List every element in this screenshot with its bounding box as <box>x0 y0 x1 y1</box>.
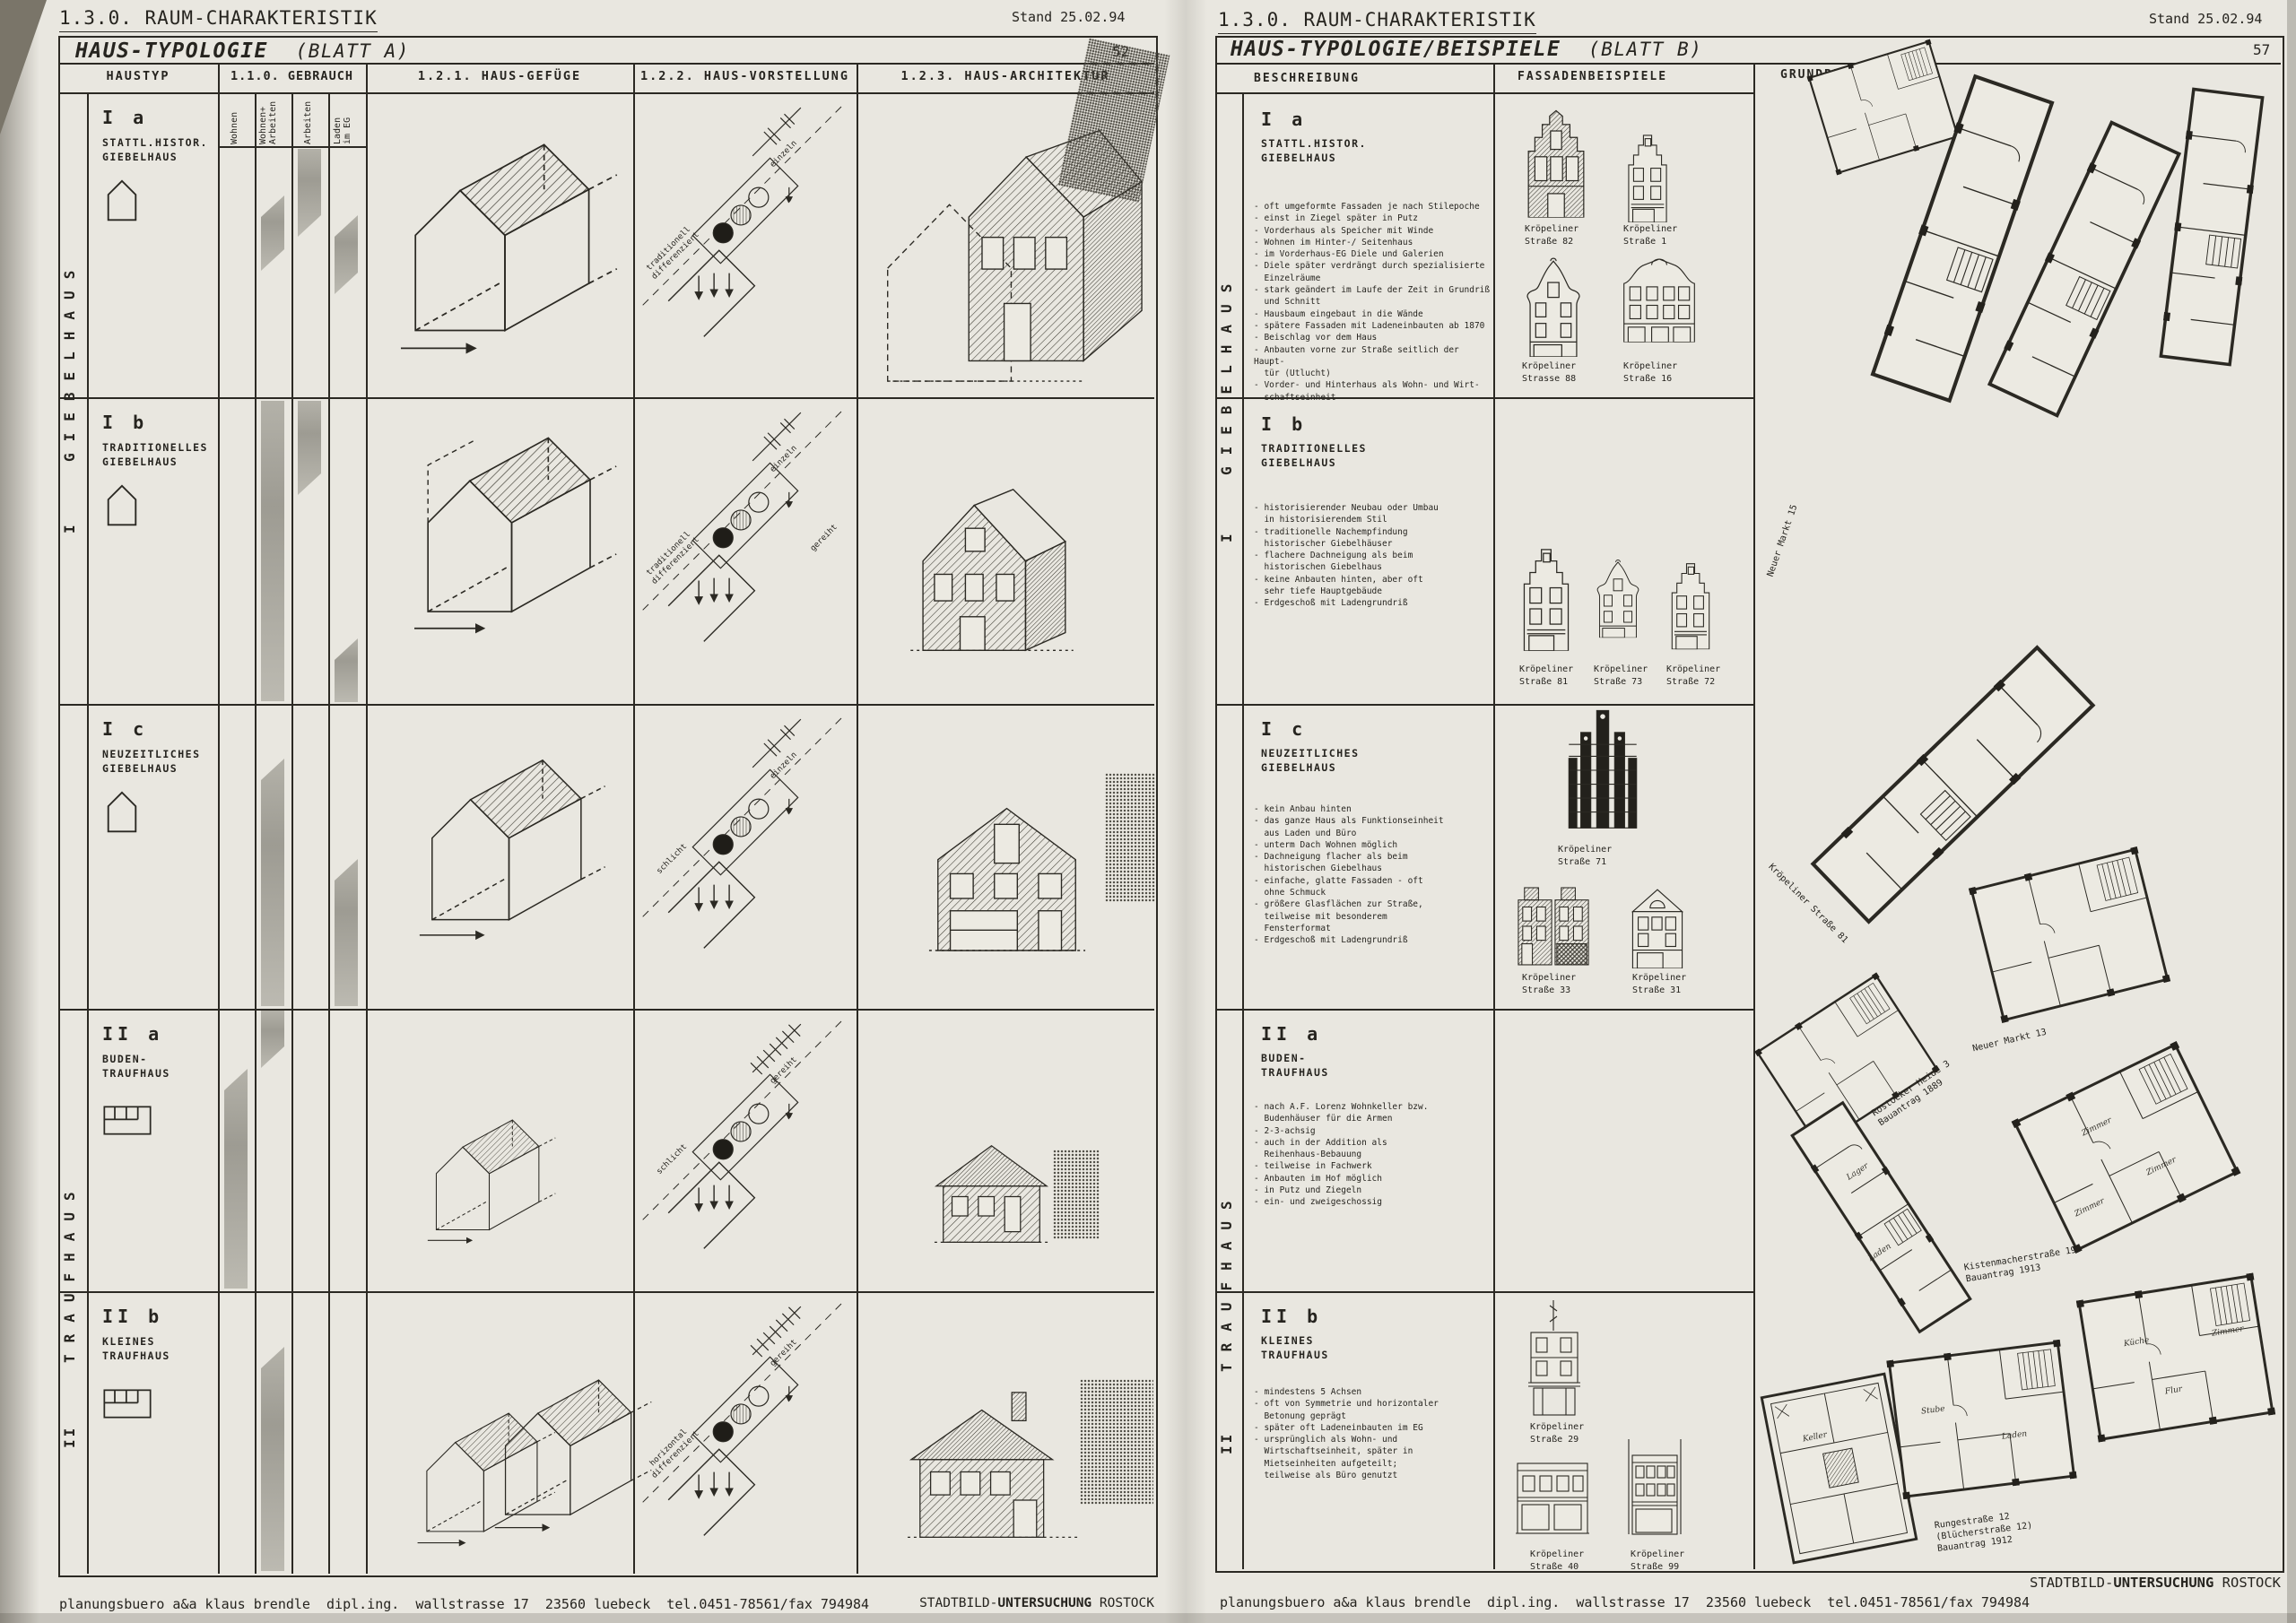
section-bullets-ib: - historisierender Neubau oder Umbau in … <box>1254 502 1492 610</box>
facade-caption: Kröpeliner Straße 16 <box>1623 360 1677 385</box>
footer-right: planungsbuero a&a klaus brendle dipl.ing… <box>1220 1594 2030 1610</box>
subcol-wohnen: Wohnen <box>230 96 239 144</box>
section-name-ib: TRADITIONELLES GIEBELHAUS <box>1261 441 1367 470</box>
facade-drawing-kroepeliner-73 <box>1594 538 1642 658</box>
section-bullets-ia: - oft umgeformte Fassaden je nach Stilep… <box>1254 201 1492 404</box>
facade-drawing-kroepeliner-33 <box>1516 882 1591 968</box>
section-bullets-iib: - mindestens 5 Achsen - oft von Symmetri… <box>1254 1386 1492 1481</box>
grid-line <box>1215 92 1753 94</box>
doc-header-right: 1.3.0. RAUM-CHARAKTERISTIK <box>1218 9 1536 34</box>
facade-drawing-kroepeliner-71 <box>1561 707 1645 834</box>
facade-caption: Kröpeliner Straße 29 <box>1530 1421 1584 1445</box>
section-name-iia: BUDEN- TRAUFHAUS <box>1261 1051 1329 1080</box>
section-code-ib: I b <box>1261 413 1307 435</box>
sheet-title-text: HAUS-TYPOLOGIE/BEISPIELE <box>1231 38 1561 61</box>
col-header-vorstellung: 1.2.2. HAUS-VORSTELLUNG <box>633 69 857 83</box>
sheet-subtitle-text: (BLATT B) <box>1588 39 1702 60</box>
doc-header-left: 1.3.0. RAUM-CHARAKTERISTIK <box>59 7 378 32</box>
group-label-giebelhaus-left: GIEBELHAUS <box>61 103 78 462</box>
group-number-i-left: I <box>61 498 78 534</box>
grid-line <box>291 92 293 1574</box>
facade-caption: Kröpeliner Straße 73 <box>1594 664 1648 688</box>
brand-pre: STADTBILD- <box>919 1596 997 1610</box>
section-code-iib: II b <box>1261 1306 1322 1327</box>
grid-line <box>633 63 635 1574</box>
scan-edge-right <box>2287 0 2296 1623</box>
scanned-spread: 1.3.0. RAUM-CHARAKTERISTIK Stand 25.02.9… <box>0 0 2296 1623</box>
stipple-block <box>1080 1379 1153 1505</box>
brand-post: ROSTOCK <box>2213 1575 2281 1591</box>
usage-bar <box>261 401 284 701</box>
pictogram-traufhaus-iib <box>102 1381 152 1420</box>
facade-drawing-kroepeliner-72 <box>1666 545 1715 658</box>
grid-line <box>1215 1009 1753 1011</box>
grid-line <box>1215 1291 1753 1293</box>
floorplan-rungestrasse-12 <box>1884 1324 2079 1515</box>
footer-left: planungsbuero a&a klaus brendle dipl.ing… <box>59 1596 869 1612</box>
page-gutter <box>1164 0 1207 1623</box>
subcol-laden-im-eg: Laden im EG <box>333 98 352 144</box>
scan-edge-bottom <box>0 1613 2296 1623</box>
col-header-beschreibung: BESCHREIBUNG <box>1254 72 1360 85</box>
row-name-ia: STATTL.HISTOR. GIEBELHAUS <box>102 135 208 164</box>
row-name-iib: KLEINES TRAUFHAUS <box>102 1334 170 1363</box>
grid-line <box>1215 704 1753 706</box>
page-number-right: 57 <box>2253 41 2270 58</box>
facade-caption: Kröpeliner Straße 82 <box>1525 223 1578 247</box>
group-number-ii-right: II <box>1218 1410 1235 1454</box>
section-name-ic: NEUZEITLICHES GIEBELHAUS <box>1261 746 1360 775</box>
grid-line <box>255 92 257 1574</box>
section-code-ia: I a <box>1261 108 1307 130</box>
floorplan-bottom-right <box>2074 1263 2277 1451</box>
brand-bold: UNTERSUCHUNG <box>2113 1575 2213 1591</box>
facade-drawing-kroepeliner-82 <box>1523 106 1589 221</box>
grid-line <box>58 63 1154 65</box>
gefuege-drawing-ic <box>408 742 610 958</box>
facade-caption: Kröpeliner Straße 72 <box>1666 664 1720 688</box>
facade-drawing-kroepeliner-29 <box>1526 1298 1582 1417</box>
group-label-traufhaus-left: TRAUFHAUS <box>61 1022 78 1363</box>
section-code-ic: I c <box>1261 718 1307 740</box>
grid-line <box>328 92 330 1574</box>
facade-caption: Kröpeliner Straße 71 <box>1558 844 1612 868</box>
row-code-ib: I b <box>102 412 148 433</box>
row-name-iia: BUDEN- TRAUFHAUS <box>102 1052 170 1081</box>
row-name-ic: NEUZEITLICHES GIEBELHAUS <box>102 747 201 776</box>
facade-caption: Kröpeliner Straße 31 <box>1632 972 1686 996</box>
group-label-giebelhaus-right: GIEBELHAUS <box>1218 117 1235 475</box>
gefuege-drawing-ia <box>387 115 622 384</box>
facade-drawing-kroepeliner-1 <box>1622 126 1674 222</box>
row-code-iib: II b <box>102 1306 163 1327</box>
col-header-haustyp: HAUSTYP <box>58 69 218 83</box>
section-bullets-ic: - kein Anbau hinten - das ganze Haus als… <box>1254 803 1492 947</box>
sheet-title-text: HAUS-TYPOLOGIE <box>75 39 268 63</box>
row-name-ib: TRADITIONELLES GIEBELHAUS <box>102 440 208 469</box>
col-header-gefuege: 1.2.1. HAUS-GEFÜGE <box>366 69 633 83</box>
pictogram-giebelhaus-ib <box>104 482 140 527</box>
grid-line <box>218 63 220 1574</box>
usage-bar <box>261 1347 284 1571</box>
facade-caption: Kröpeliner Straße 40 <box>1530 1549 1584 1573</box>
grid-line <box>1242 92 1244 1569</box>
grid-line <box>87 92 89 1574</box>
facade-caption: Kröpeliner Straße 81 <box>1519 664 1573 688</box>
sheet-title-right: HAUS-TYPOLOGIE/BEISPIELE (BLATT B) <box>1231 38 1702 61</box>
architektur-drawing-iib <box>904 1385 1085 1558</box>
gefuege-drawing-iib <box>393 1363 617 1556</box>
row-code-ic: I c <box>102 718 148 740</box>
usage-bar <box>224 1069 248 1289</box>
subcol-wohnen-arbeiten: Wohnen+ Arbeiten <box>258 94 278 144</box>
section-code-iia: II a <box>1261 1023 1322 1045</box>
facade-drawing-kroepeliner-40 <box>1514 1447 1591 1539</box>
group-number-ii-left: II <box>61 1403 78 1448</box>
col-header-fassaden: FASSADENBEISPIELE <box>1518 70 1667 83</box>
grid-line <box>1493 63 1495 1569</box>
pictogram-giebelhaus-ia <box>104 178 140 222</box>
grid-line <box>58 92 1154 94</box>
scan-edge-left <box>0 0 39 1623</box>
facade-caption: Kröpeliner Straße 33 <box>1522 972 1576 996</box>
facade-drawing-kroepeliner-31 <box>1629 882 1686 968</box>
grid-line <box>366 63 368 1574</box>
facade-caption: Kröpeliner Strasse 88 <box>1522 360 1576 385</box>
grid-line <box>1215 63 2281 65</box>
pictogram-giebelhaus-ic <box>104 789 140 834</box>
pictogram-traufhaus-iia <box>102 1098 152 1137</box>
architektur-drawing-ic <box>926 769 1089 968</box>
facade-caption: Kröpeliner Straße 99 <box>1631 1549 1684 1573</box>
section-bullets-iia: - nach A.F. Lorenz Wohnkeller bzw. Buden… <box>1254 1101 1492 1209</box>
stand-date-left: Stand 25.02.94 <box>1012 9 1125 25</box>
usage-bar <box>261 759 284 1006</box>
group-number-i-right: I <box>1218 507 1235 542</box>
facade-drawing-kroepeliner-16 <box>1620 242 1699 355</box>
stipple-block <box>1053 1150 1100 1239</box>
brand-left: STADTBILD-UNTERSUCHUNG ROSTOCK <box>892 1596 1154 1610</box>
brand-bold: UNTERSUCHUNG <box>997 1596 1091 1610</box>
architektur-drawing-ib <box>904 477 1079 667</box>
facade-drawing-kroepeliner-99 <box>1622 1436 1688 1537</box>
subcol-arbeiten: Arbeiten <box>303 96 313 144</box>
grid-line <box>58 704 1154 706</box>
gefuege-drawing-iia <box>420 1110 559 1254</box>
architektur-drawing-iia <box>933 1132 1051 1262</box>
section-name-iib: KLEINES TRAUFHAUS <box>1261 1333 1329 1362</box>
row-code-ia: I a <box>102 107 148 128</box>
brand-pre: STADTBILD- <box>2030 1575 2113 1591</box>
grid-line <box>58 1009 1154 1011</box>
gefuege-drawing-ib <box>402 421 622 650</box>
sheet-title-left: HAUS-TYPOLOGIE (BLATT A) <box>75 39 410 63</box>
facade-drawing-kroepeliner-88 <box>1518 256 1588 357</box>
grid-line <box>58 1291 1154 1293</box>
grid-line <box>1753 63 1755 1569</box>
grid-line <box>857 63 858 1574</box>
group-label-traufhaus-right: TRAUFHAUS <box>1218 1031 1235 1372</box>
row-code-iia: II a <box>102 1023 163 1045</box>
stipple-block <box>1105 773 1155 902</box>
brand-right: STADTBILD-UNTERSUCHUNG ROSTOCK <box>2016 1575 2281 1591</box>
sheet-subtitle-text: (BLATT A) <box>296 40 410 62</box>
facade-drawing-kroepeliner-81 <box>1518 531 1575 658</box>
col-header-gebrauch: 1.1.0. GEBRAUCH <box>218 69 366 83</box>
grid-line <box>58 397 1154 399</box>
usage-bar <box>335 859 358 1006</box>
brand-post: ROSTOCK <box>1091 1596 1154 1610</box>
stand-date-right: Stand 25.02.94 <box>2149 11 2262 27</box>
section-name-ia: STATTL.HISTOR. GIEBELHAUS <box>1261 136 1367 165</box>
